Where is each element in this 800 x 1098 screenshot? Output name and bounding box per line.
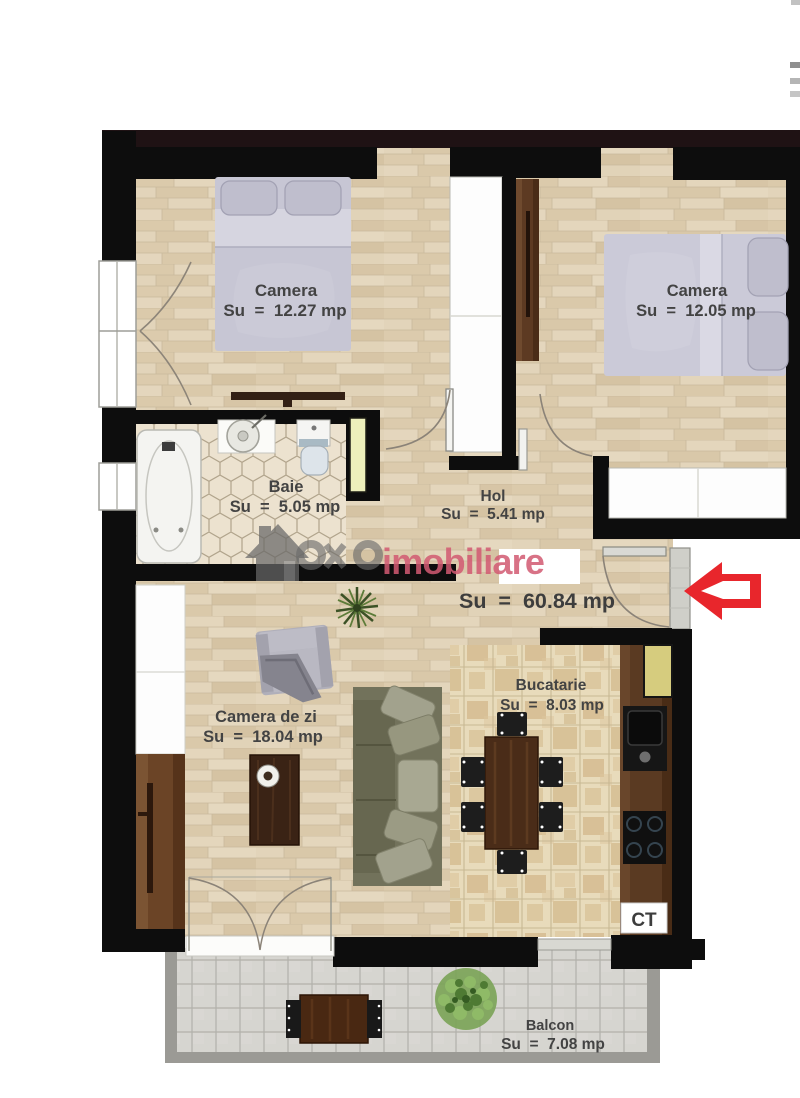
svg-text:Su = 8.03 mp: Su = 8.03 mp (500, 697, 604, 714)
svg-text:Balcon: Balcon (526, 1018, 574, 1034)
svg-text:Camera de zi: Camera de zi (215, 708, 317, 726)
svg-text:Su = 12.27 mp: Su = 12.27 mp (223, 301, 346, 320)
svg-text:Su = 12.05 mp: Su = 12.05 mp (636, 302, 756, 320)
svg-text:Su = 18.04 mp: Su = 18.04 mp (203, 728, 323, 746)
svg-text:Bucatarie: Bucatarie (516, 677, 587, 694)
svg-text:imobiliare: imobiliare (382, 541, 544, 582)
svg-text:Su = 7.08 mp: Su = 7.08 mp (501, 1036, 605, 1053)
svg-text:Camera: Camera (255, 281, 318, 300)
svg-text:Camera: Camera (667, 282, 728, 300)
svg-text:Baie: Baie (269, 478, 304, 496)
svg-text:Su = 5.41 mp: Su = 5.41 mp (441, 506, 545, 523)
svg-text:Su = 5.05 mp: Su = 5.05 mp (230, 498, 341, 516)
svg-text:Hol: Hol (481, 488, 506, 505)
svg-text:Su = 60.84 mp: Su = 60.84 mp (459, 589, 615, 613)
svg-text:CT: CT (631, 910, 657, 931)
